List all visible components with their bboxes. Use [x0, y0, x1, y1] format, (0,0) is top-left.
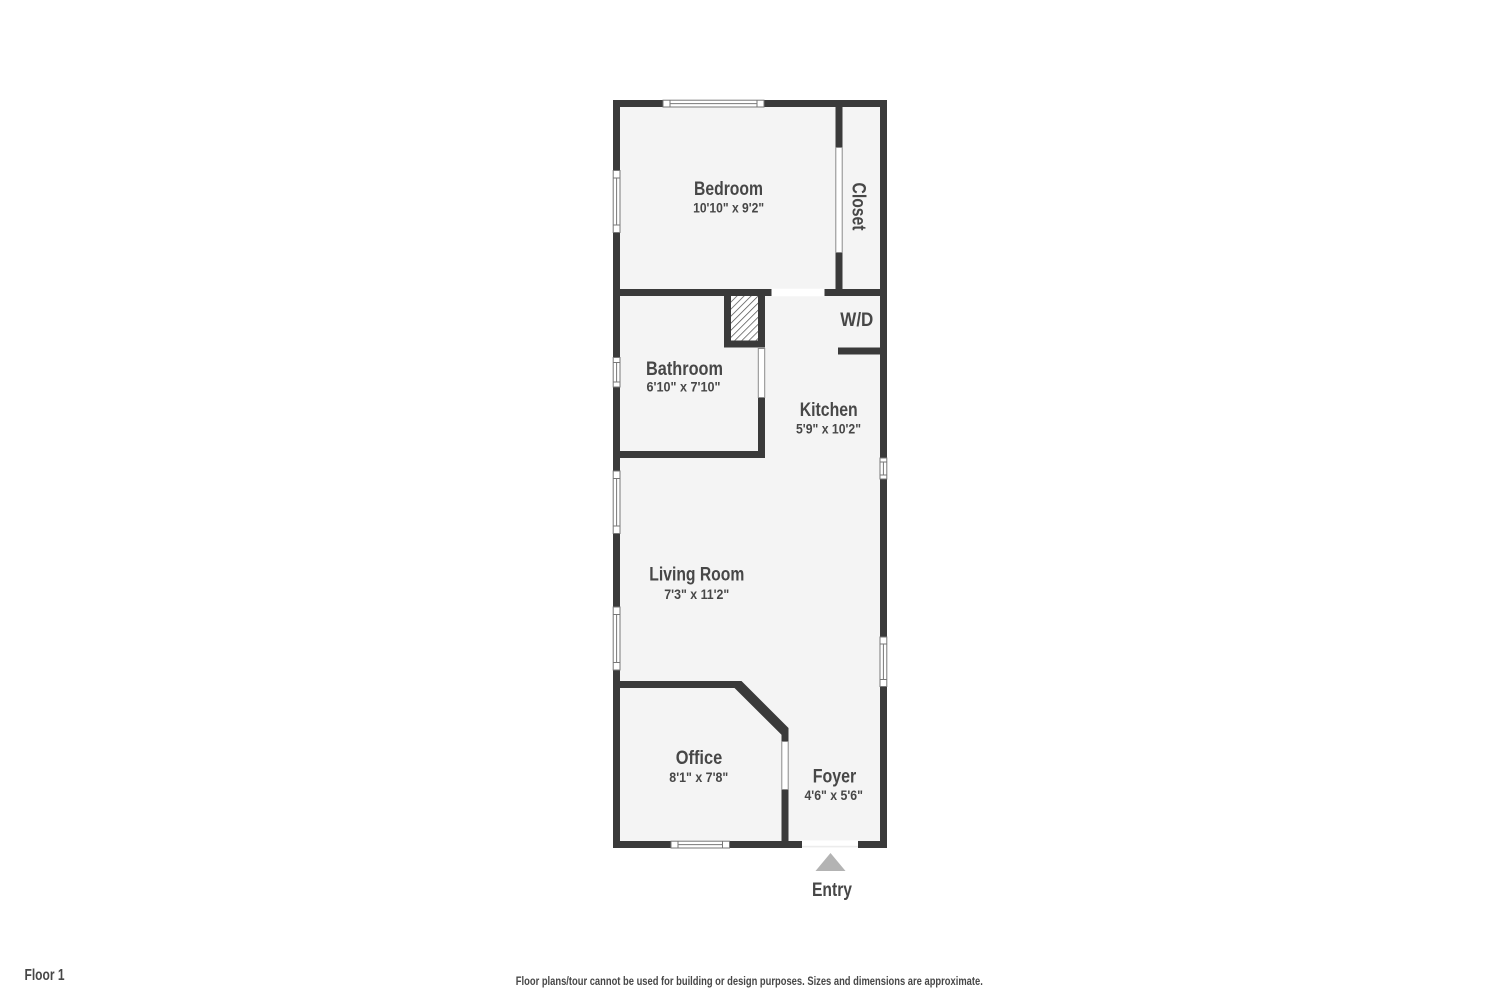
svg-text:Foyer: Foyer — [813, 767, 857, 788]
svg-text:Bathroom: Bathroom — [646, 359, 723, 380]
svg-text:10'10" x 9'2": 10'10" x 9'2" — [693, 200, 764, 216]
svg-text:Floor plans/tour cannot be use: Floor plans/tour cannot be used for buil… — [516, 976, 983, 988]
svg-text:5'9" x 10'2": 5'9" x 10'2" — [796, 421, 861, 437]
svg-text:8'1" x 7'8": 8'1" x 7'8" — [669, 769, 728, 785]
svg-text:W/D: W/D — [840, 310, 873, 331]
svg-text:Bedroom: Bedroom — [694, 179, 763, 200]
svg-text:4'6" x 5'6": 4'6" x 5'6" — [804, 787, 863, 803]
svg-text:Living Room: Living Room — [649, 565, 744, 586]
svg-text:7'3" x 11'2": 7'3" x 11'2" — [664, 586, 729, 602]
svg-text:Office: Office — [676, 748, 723, 769]
svg-text:Closet: Closet — [848, 183, 869, 232]
svg-text:Kitchen: Kitchen — [800, 400, 858, 421]
svg-text:Entry: Entry — [812, 880, 852, 901]
svg-text:6'10" x 7'10": 6'10" x 7'10" — [647, 379, 721, 395]
svg-text:Floor 1: Floor 1 — [25, 967, 65, 984]
